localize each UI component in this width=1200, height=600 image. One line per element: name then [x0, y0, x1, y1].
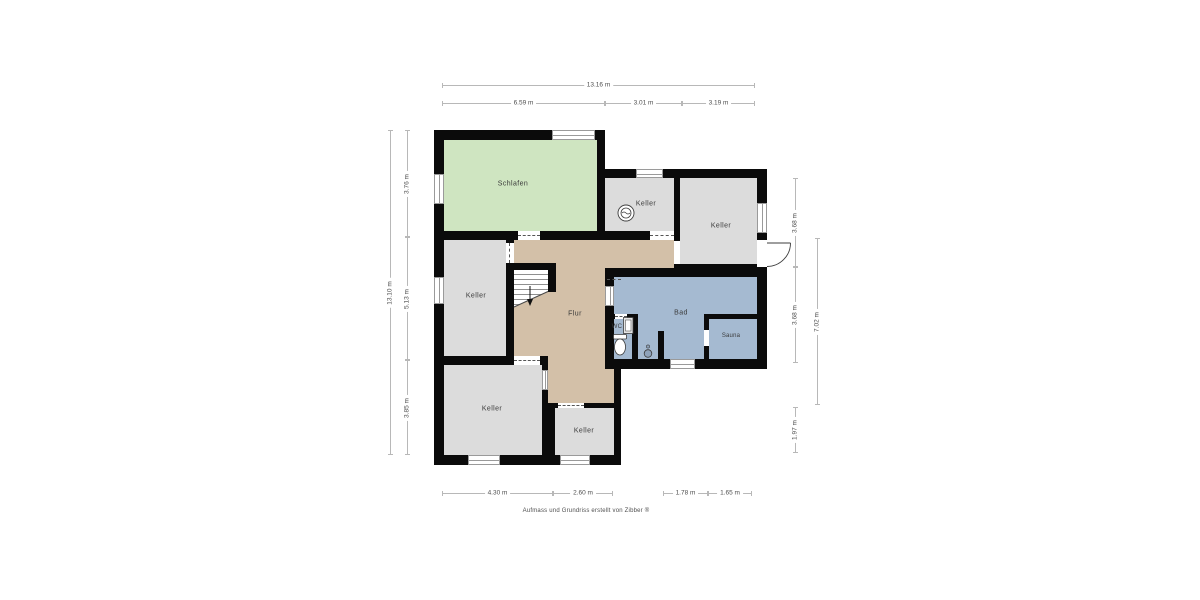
- label-wc: WC: [612, 324, 622, 330]
- dim-left-3: 3.85 m: [407, 360, 408, 455]
- dim-bottom-1: 4.30 m: [442, 493, 553, 494]
- dim-top-total-label: 13.16 m: [584, 80, 614, 89]
- door-exterior-right: [757, 240, 767, 267]
- dim-top-3: 3.19 m: [682, 103, 755, 104]
- label-schlafen: Schlafen: [498, 181, 528, 188]
- sauna-top-wall: [704, 314, 757, 319]
- window-keller-bottom-left: [468, 455, 500, 465]
- room-flur-vertical-low: [556, 369, 614, 403]
- window-keller-bottom-center: [560, 455, 590, 465]
- dim-bottom-1-label: 4.30 m: [485, 488, 511, 497]
- label-keller-top: Keller: [636, 201, 656, 208]
- label-keller-mid: Keller: [466, 293, 486, 300]
- door-schlafen-dashes: [518, 235, 540, 236]
- window-keller-mid-left: [434, 277, 444, 304]
- room-keller-right: [680, 178, 757, 264]
- door-keller-mid-dashes: [509, 243, 510, 263]
- door-wc-dashes: [615, 316, 627, 317]
- stair-top-wall: [514, 263, 556, 270]
- door-keller-right: [674, 241, 680, 264]
- dim-left-2-label: 5.13 m: [402, 286, 411, 312]
- footer-credit: Aufmass und Grundriss erstellt von Zibbe…: [523, 508, 650, 514]
- room-flur-vertical: [556, 268, 605, 369]
- dim-right-total-label: 7.02 m: [812, 309, 821, 335]
- dim-right-1: 3.68 m: [795, 178, 796, 267]
- floorplan-canvas: Schlafen Keller Keller Keller Keller Kel…: [0, 0, 1200, 600]
- window-bad-bottom: [670, 359, 695, 369]
- wc-right-wall: [632, 319, 638, 359]
- dim-right-3: 1.97 m: [795, 407, 796, 453]
- window-schlafen-left: [434, 174, 444, 204]
- dim-left-total: 13.10 m: [390, 130, 391, 455]
- dim-top-1-label: 6.59 m: [511, 98, 537, 107]
- door-keller-bottom-left-dashes: [514, 360, 540, 361]
- dim-right-3-label: 1.97 m: [790, 417, 799, 443]
- dim-right-1-label: 3.68 m: [790, 210, 799, 236]
- window-keller-top: [636, 169, 663, 178]
- window-keller-flur: [542, 370, 548, 390]
- dim-bottom-2-label: 2.60 m: [570, 488, 596, 497]
- dim-top-1: 6.59 m: [442, 103, 605, 104]
- label-flur: Flur: [568, 311, 582, 318]
- window-flur-bad: [605, 286, 614, 306]
- label-keller-bottom-center: Keller: [574, 428, 594, 435]
- label-bad: Bad: [674, 310, 688, 317]
- dim-right-2-label: 3.68 m: [790, 302, 799, 328]
- door-bad-dashes: [607, 279, 621, 280]
- window-keller-right: [757, 203, 767, 233]
- door-sauna: [704, 330, 709, 346]
- dim-right-total: 7.02 m: [817, 238, 818, 405]
- dim-top-total: 13.16 m: [442, 85, 755, 86]
- door-swing-icon: [767, 243, 791, 267]
- room-flur-strip: [548, 292, 556, 403]
- label-sauna: Sauna: [722, 333, 740, 339]
- dim-left-2: 5.13 m: [407, 237, 408, 360]
- dim-left-3-label: 3.85 m: [402, 395, 411, 421]
- dim-bottom-2: 2.60 m: [553, 493, 613, 494]
- label-keller-bottom-left: Keller: [482, 406, 502, 413]
- dim-bottom-4-label: 1.65 m: [717, 488, 743, 497]
- door-keller-mid: [506, 243, 514, 263]
- window-schlafen-top: [552, 130, 595, 140]
- room-understair: [514, 307, 548, 356]
- dim-left-1: 3.76 m: [407, 130, 408, 237]
- label-keller-right: Keller: [711, 223, 731, 230]
- dim-bottom-3: 1.78 m: [663, 493, 708, 494]
- dim-left-1-label: 3.76 m: [402, 171, 411, 197]
- bad-stub-wall: [658, 331, 664, 359]
- dim-top-2-label: 3.01 m: [631, 98, 657, 107]
- dim-bottom-3-label: 1.78 m: [673, 488, 699, 497]
- door-keller-top-dashes: [650, 235, 674, 236]
- dim-bottom-4: 1.65 m: [708, 493, 752, 494]
- dim-right-2: 3.68 m: [795, 267, 796, 363]
- door-keller-bottom-center-dashes: [558, 405, 584, 406]
- dim-left-total-label: 13.10 m: [385, 278, 394, 308]
- dim-top-3-label: 3.19 m: [706, 98, 732, 107]
- dim-top-2: 3.01 m: [605, 103, 682, 104]
